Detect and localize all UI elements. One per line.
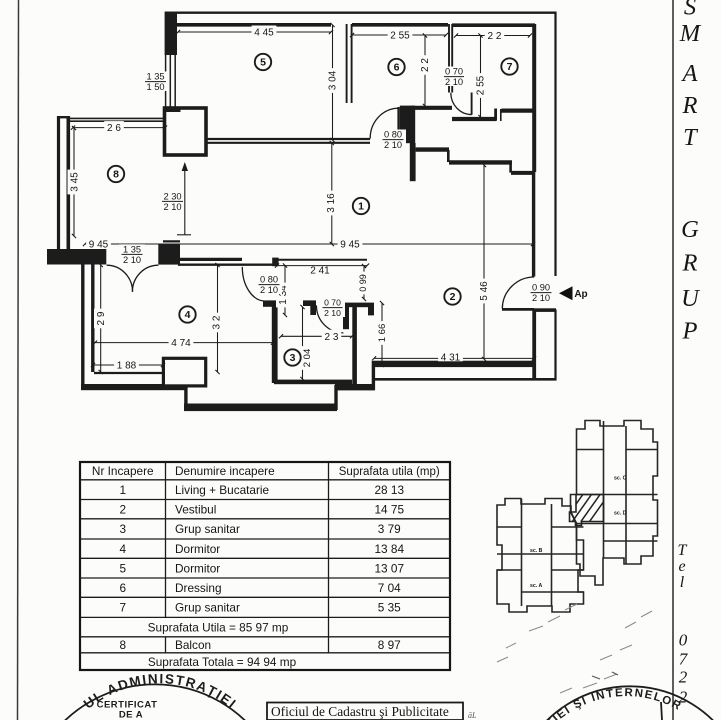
svg-text:Suprafata utila (mp): Suprafata utila (mp) [339,466,440,478]
svg-text:Dormitor: Dormitor [175,561,220,575]
svg-text:7: 7 [119,601,126,615]
svg-text:Dressing: Dressing [175,581,222,595]
svg-text:5: 5 [260,57,266,69]
svg-text:2: 2 [450,291,456,303]
svg-text:3: 3 [119,522,126,536]
svg-text:Grup sanitar: Grup sanitar [175,522,240,536]
svg-text:4: 4 [185,309,191,321]
svg-text:Suprafata Utila = 85 97 mp: Suprafata Utila = 85 97 mp [148,620,289,634]
svg-text:2 04: 2 04 [302,349,313,368]
svg-text:9 45: 9 45 [340,240,360,251]
svg-text:28 13: 28 13 [374,483,404,497]
svg-text:2 6: 2 6 [107,123,121,134]
svg-text:Vestibul: Vestibul [175,502,216,516]
svg-text:U: U [681,285,701,312]
svg-text:3 16: 3 16 [326,193,337,213]
svg-text:2 10: 2 10 [260,285,278,295]
svg-text:0 80: 0 80 [260,275,278,285]
svg-text:2 41: 2 41 [310,266,330,277]
svg-text:13 07: 13 07 [374,561,404,575]
svg-text:2: 2 [119,502,126,516]
svg-text:2 9: 2 9 [96,311,107,325]
svg-text:P: P [682,318,698,345]
svg-text:T: T [683,124,699,151]
svg-text:Ap: Ap [574,289,587,300]
svg-text:0 70: 0 70 [324,298,341,308]
svg-text:R: R [682,92,698,119]
svg-text:sc. A: sc. A [530,583,542,589]
svg-text:2 55: 2 55 [476,75,487,95]
svg-text:A: A [681,60,699,87]
svg-text:0 70: 0 70 [445,67,463,77]
svg-text:5 46: 5 46 [479,281,490,301]
svg-text:1 35: 1 35 [123,244,141,254]
svg-text:14 75: 14 75 [374,502,404,516]
svg-text:2: 2 [679,688,688,707]
svg-text:9 45: 9 45 [89,239,109,250]
svg-text:1 35: 1 35 [146,72,164,82]
svg-text:0 80: 0 80 [384,130,402,140]
svg-text:5 35: 5 35 [378,601,401,615]
svg-text:2 10: 2 10 [123,255,141,265]
svg-text:0 90: 0 90 [532,283,550,293]
svg-text:2 2: 2 2 [488,31,502,42]
svg-text:7: 7 [507,61,513,73]
svg-text:Nr Incapere: Nr Incapere [92,464,154,478]
svg-text:1 50: 1 50 [146,82,164,92]
svg-text:7 04: 7 04 [378,581,401,595]
svg-text:4 45: 4 45 [254,28,274,39]
svg-text:1 66: 1 66 [377,324,388,343]
svg-text:M: M [679,20,702,47]
svg-text:4: 4 [119,542,126,556]
svg-text:8 97: 8 97 [378,638,401,652]
svg-text:Grup sanitar: Grup sanitar [175,601,240,615]
svg-text:DE A: DE A [119,710,143,720]
svg-text:3 04: 3 04 [328,70,339,90]
svg-text:2: 2 [679,668,688,687]
svg-text:2 10: 2 10 [324,308,341,318]
svg-text:S: S [684,0,696,21]
svg-text:1: 1 [119,483,126,497]
svg-text:2 2: 2 2 [420,58,431,72]
svg-text:Balcon: Balcon [175,638,211,652]
svg-text:2 10: 2 10 [163,202,181,212]
svg-text:8: 8 [119,638,126,652]
svg-text:Living + Bucatarie: Living + Bucatarie [175,483,270,497]
svg-text:e: e [678,558,685,575]
svg-text:1: 1 [358,201,364,213]
svg-text:8: 8 [113,169,119,181]
svg-text:T: T [678,542,688,559]
svg-text:0: 0 [679,631,688,650]
svg-text:4 74: 4 74 [171,338,191,349]
svg-text:Oficiul de Cadastru şi Publici: Oficiul de Cadastru şi Publicitate [271,704,449,719]
svg-text:6: 6 [394,62,400,74]
svg-text:G: G [681,216,699,243]
svg-text:1 88: 1 88 [117,360,137,371]
svg-text:3 45: 3 45 [70,172,81,192]
svg-text:6: 6 [119,581,126,595]
svg-text:4 31: 4 31 [441,352,461,363]
svg-text:3: 3 [290,352,296,364]
svg-text:5: 5 [119,561,126,575]
svg-text:Denumire incapere: Denumire incapere [175,464,275,478]
svg-text:0 99: 0 99 [358,274,368,292]
svg-text:2 10: 2 10 [384,140,402,150]
svg-text:3 2: 3 2 [212,315,223,329]
svg-text:2 55: 2 55 [390,31,410,42]
svg-text:sc. C: sc. C [614,476,627,482]
svg-text:R: R [682,250,698,277]
svg-text:2 10: 2 10 [532,293,550,303]
svg-text:l: l [680,574,685,591]
svg-text:2 3: 2 3 [325,332,339,343]
svg-text:Suprafata Totala = 94 94 mp: Suprafata Totala = 94 94 mp [148,655,297,669]
svg-text:2 30: 2 30 [163,191,181,201]
svg-text:3 79: 3 79 [378,522,401,536]
svg-text:sc. D: sc. D [614,511,627,517]
svg-text:ăL: ăL [468,711,477,720]
svg-text:Dormitor: Dormitor [175,542,220,556]
svg-text:2 10: 2 10 [445,77,463,87]
svg-text:sc. B: sc. B [530,548,543,554]
svg-text:13 84: 13 84 [374,542,404,556]
